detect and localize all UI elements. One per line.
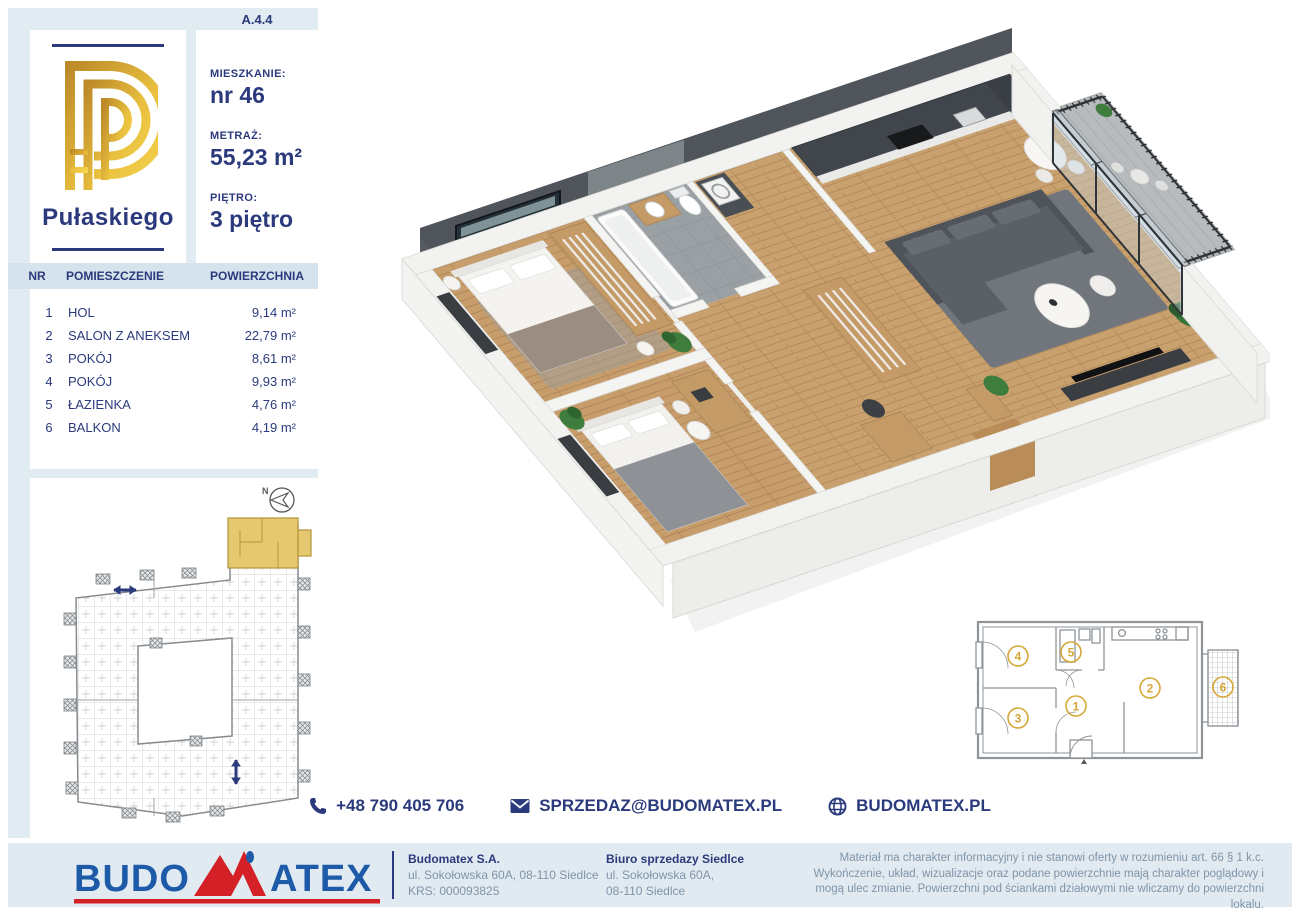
company-address: ul. Sokołowska 60A, 08-110 Siedlce [408, 867, 599, 883]
email-address: SPRZEDAZ@BUDOMATEX.PL [539, 796, 782, 816]
area-value: 55,23 m² [210, 144, 302, 171]
svg-text:1: 1 [1073, 700, 1080, 714]
svg-text:3: 3 [1015, 712, 1022, 726]
phone-icon [309, 797, 327, 815]
building-floor-plan: N [30, 478, 318, 838]
project-logo-card: Pułaskiego [30, 30, 186, 263]
compass-label: N [262, 486, 269, 496]
table-row: 6BALKON4,19 m² [30, 416, 318, 439]
room-number: 6 [30, 416, 68, 439]
room-number: 4 [30, 370, 68, 393]
pulaskiego-logo-icon [58, 58, 158, 198]
room-area: 4,19 m² [212, 416, 318, 439]
phone-link[interactable]: +48 790 405 706 [309, 796, 464, 816]
compass-icon: N [262, 486, 294, 512]
email-link[interactable]: SPRZEDAZ@BUDOMATEX.PL [510, 796, 782, 816]
globe-icon [828, 797, 847, 816]
room-name: SALON Z ANEKSEM [68, 324, 212, 347]
col-header-area: POWIERZCHNIA [210, 269, 318, 283]
table-row: 3POKÓJ8,61 m² [30, 347, 318, 370]
office-name: Biuro sprzedazy Siedlce [606, 851, 744, 867]
rooms-table-body: 1HOL9,14 m²2SALON Z ANEKSEM22,79 m²3POKÓ… [30, 301, 318, 439]
room-name: POKÓJ [68, 347, 212, 370]
col-header-room: POMIESZCZENIE [66, 269, 210, 283]
room-number-1: 1 [1066, 696, 1086, 716]
table-row: 4POKÓJ9,93 m² [30, 370, 318, 393]
unit-code-badge: A.4.4 [196, 12, 318, 27]
website-link[interactable]: BUDOMATEX.PL [828, 796, 991, 816]
room-area: 22,79 m² [212, 324, 318, 347]
rooms-table-card: 1HOL9,14 m²2SALON Z ANEKSEM22,79 m²3POKÓ… [30, 289, 318, 469]
sales-office-info: Biuro sprzedazy Siedlce ul. Sokołowska 6… [606, 851, 744, 899]
logo-text-atex: ATEX [270, 858, 373, 900]
flyer-page: A.4.4 Pułaskiego MI [0, 0, 1300, 919]
logo-underline [74, 899, 380, 904]
svg-text:4: 4 [1015, 650, 1022, 664]
room-name: HOL [68, 301, 212, 324]
legal-disclaimer: Materiał ma charakter informacyjny i nie… [786, 851, 1264, 913]
room-name: ŁAZIENKA [68, 393, 212, 416]
room-number: 5 [30, 393, 68, 416]
svg-text:2: 2 [1147, 682, 1154, 696]
table-row: 5ŁAZIENKA4,76 m² [30, 393, 318, 416]
company-krs: KRS: 000093825 [408, 883, 599, 899]
apartment-label: MIESZKANIE: [210, 68, 286, 80]
envelope-icon [510, 798, 530, 814]
table-row: 2SALON Z ANEKSEM22,79 m² [30, 324, 318, 347]
col-header-nr: NR [8, 269, 66, 283]
contact-row: +48 790 405 706 SPRZEDAZ@BUDOMATEX.PL BU… [0, 796, 1300, 816]
room-number-3: 3 [1008, 708, 1028, 728]
logo-m-mountain-icon [194, 851, 266, 896]
office-address-line2: 08-110 Siedlce [606, 883, 744, 899]
room-area: 9,14 m² [212, 301, 318, 324]
room-number: 3 [30, 347, 68, 370]
highlighted-unit[interactable] [228, 518, 311, 568]
room-number-2: 2 [1140, 678, 1160, 698]
room-area: 4,76 m² [212, 393, 318, 416]
room-name: BALKON [68, 416, 212, 439]
divider [52, 44, 164, 47]
company-info: Budomatex S.A. ul. Sokołowska 60A, 08-11… [408, 851, 599, 899]
unit-2d-schematic: 1 2 3 4 5 6 [972, 612, 1240, 777]
footer: BUDO ATEX Budomatex S.A. ul. Sokołowska … [8, 843, 1292, 907]
room-number-5: 5 [1061, 642, 1081, 662]
sidebar: A.4.4 Pułaskiego MI [8, 8, 318, 838]
office-address-line1: ul. Sokołowska 60A, [606, 867, 744, 883]
unit-info-card: MIESZKANIE: nr 46 METRAŻ: 55,23 m² PIĘTR… [196, 30, 318, 263]
divider [52, 248, 164, 251]
room-area: 8,61 m² [212, 347, 318, 370]
room-number: 2 [30, 324, 68, 347]
area-label: METRAŻ: [210, 130, 302, 142]
logo-text-budo: BUDO [74, 858, 190, 900]
budomatex-logo: BUDO ATEX [74, 849, 386, 907]
website-url: BUDOMATEX.PL [856, 796, 991, 816]
room-area: 9,93 m² [212, 370, 318, 393]
floor-label: PIĘTRO: [210, 192, 293, 204]
room-name: POKÓJ [68, 370, 212, 393]
site-plan-card: N [30, 478, 318, 838]
floor-value: 3 piętro [210, 206, 293, 233]
phone-number: +48 790 405 706 [336, 796, 464, 816]
logo-drop-icon [246, 851, 254, 863]
project-name: Pułaskiego [30, 204, 186, 232]
apartment-number: nr 46 [210, 82, 286, 109]
room-number: 1 [30, 301, 68, 324]
svg-text:5: 5 [1068, 646, 1075, 660]
rooms-table: 1HOL9,14 m²2SALON Z ANEKSEM22,79 m²3POKÓ… [30, 301, 318, 439]
table-row: 1HOL9,14 m² [30, 301, 318, 324]
rooms-table-header: NR POMIESZCZENIE POWIERZCHNIA [8, 263, 318, 289]
footer-divider [392, 851, 394, 899]
entry-marker [1081, 759, 1087, 764]
company-name: Budomatex S.A. [408, 851, 599, 867]
apartment-3d-render [330, 20, 1270, 680]
svg-text:6: 6 [1220, 681, 1227, 695]
room-number-4: 4 [1008, 646, 1028, 666]
